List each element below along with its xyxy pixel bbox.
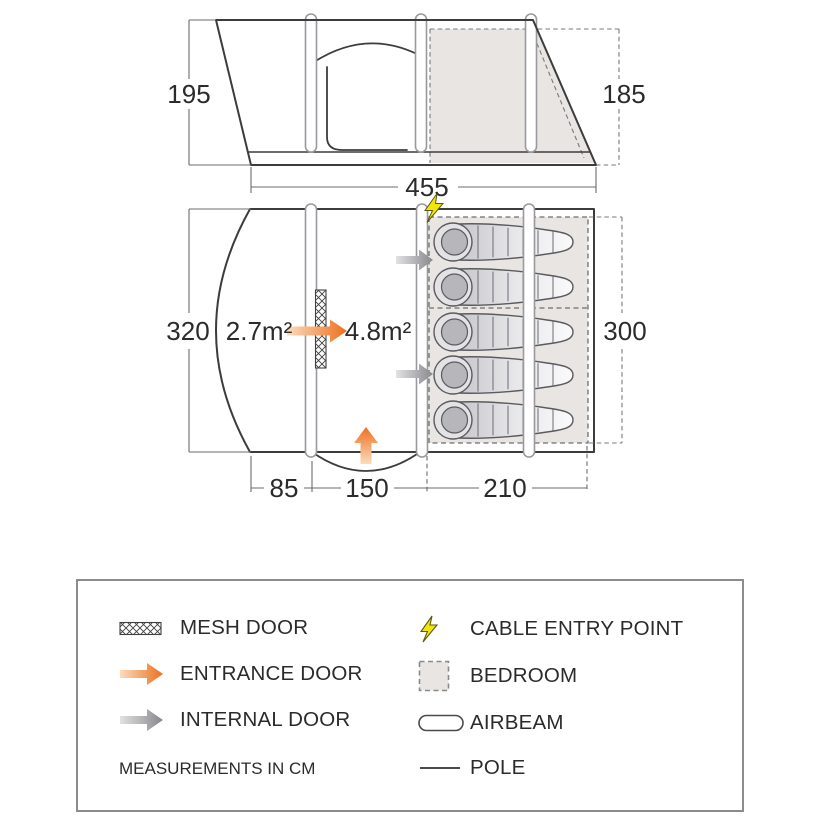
dimension-195-label: 195 [167, 79, 210, 109]
legend-label: POLE [470, 756, 526, 780]
legend-item-entrance-door: ENTRANCE DOOR [119, 659, 363, 689]
legend-label: AIRBEAM [470, 711, 564, 735]
diagram-canvas: 195 185 455 2.7m² 4.8m² 320 [0, 0, 818, 560]
tent-floorplan-diagram: 195 185 455 2.7m² 4.8m² 320 [0, 0, 818, 818]
legend-item-airbeam: AIRBEAM [418, 708, 564, 738]
airbeam-icon [418, 714, 470, 732]
legend-label: INTERNAL DOOR [180, 708, 350, 732]
dimension-185-label: 185 [602, 79, 645, 109]
entrance-door-arrow-icon [119, 661, 180, 687]
airbeam-pole [416, 14, 427, 152]
cable-entry-point-icon [418, 615, 470, 643]
legend-item-internal-door: INTERNAL DOOR [119, 705, 350, 735]
legend-label: BEDROOM [470, 664, 577, 688]
legend-label: ENTRANCE DOOR [180, 662, 363, 686]
dimension-150-label: 150 [345, 473, 388, 503]
mesh-door-icon [119, 621, 180, 636]
airbeam-pole [306, 14, 317, 152]
bedroom-shade-side [430, 29, 595, 163]
airbeam-pole [526, 14, 537, 152]
pole-line-icon [418, 765, 470, 771]
airbeam-pole [524, 204, 535, 457]
internal-door-arrow-icon [119, 707, 180, 733]
dimension-455-label: 455 [405, 172, 448, 202]
legend-label: CABLE ENTRY POINT [470, 617, 683, 641]
legend-box: MESH DOOR ENTRANCE DOOR INTERNAL DOOR ME… [76, 579, 744, 812]
legend-item-bedroom: BEDROOM [418, 661, 577, 691]
dimension-210-label: 210 [483, 473, 526, 503]
airbeam-pole [417, 204, 428, 457]
legend-item-cable-entry: CABLE ENTRY POINT [418, 614, 683, 644]
legend-item-pole: POLE [418, 753, 526, 783]
measurements-note: MEASUREMENTS IN CM [119, 759, 315, 779]
legend-item-mesh-door: MESH DOOR [119, 613, 308, 643]
dimension-300-label: 300 [603, 316, 646, 346]
porch-area-label: 2.7m² [226, 316, 293, 346]
side-elevation-view [216, 14, 619, 165]
bedroom-swatch-icon [418, 660, 470, 692]
legend-label: MESH DOOR [180, 616, 308, 640]
living-area-label: 4.8m² [345, 316, 412, 346]
dimension-85-label: 85 [270, 473, 299, 503]
dimension-320-label: 320 [166, 316, 209, 346]
